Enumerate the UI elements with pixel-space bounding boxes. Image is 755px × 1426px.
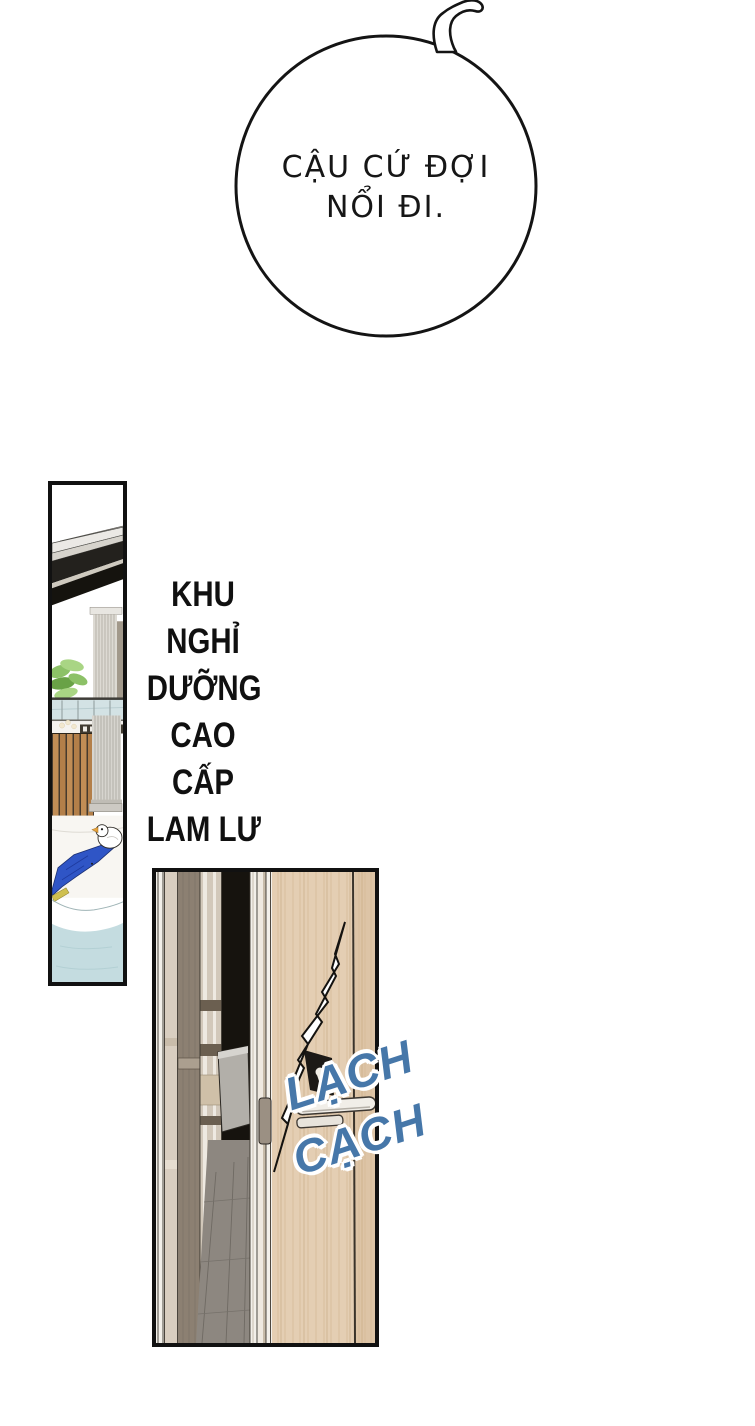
door-panel-art (156, 872, 375, 1343)
door-panel (152, 868, 379, 1347)
resort-columns-upper (90, 607, 123, 701)
location-caption: KHU NGHỈ DƯỠNG CAO CẤP LAM LƯ (136, 571, 270, 853)
speech-bubble-tail (434, 0, 483, 52)
caption-line-5: CẤP (147, 759, 260, 806)
resort-panel (48, 481, 127, 986)
caption-line-3: DƯỠNG (147, 665, 260, 712)
speech-bubble-text: CẬU CỨ ĐỢI NỔI ĐI. (236, 148, 536, 228)
caption-line-1: KHU (147, 571, 260, 618)
resort-column-lower (89, 715, 122, 811)
wood-slat-wall (52, 734, 94, 816)
speech-line-1: CẬU CỨ ĐỢI (236, 148, 536, 188)
caption-line-6: LAM LƯ (147, 806, 260, 853)
cabinet (218, 1046, 250, 1132)
caption-line-4: CAO (147, 712, 260, 759)
caption-line-2: NGHỈ (147, 618, 260, 665)
door-hinge (259, 1098, 271, 1144)
comic-page: CẬU CỨ ĐỢI NỔI ĐI. (0, 0, 755, 1426)
resort-panel-art (52, 485, 123, 982)
speech-line-2: NỔI ĐI. (236, 188, 536, 228)
